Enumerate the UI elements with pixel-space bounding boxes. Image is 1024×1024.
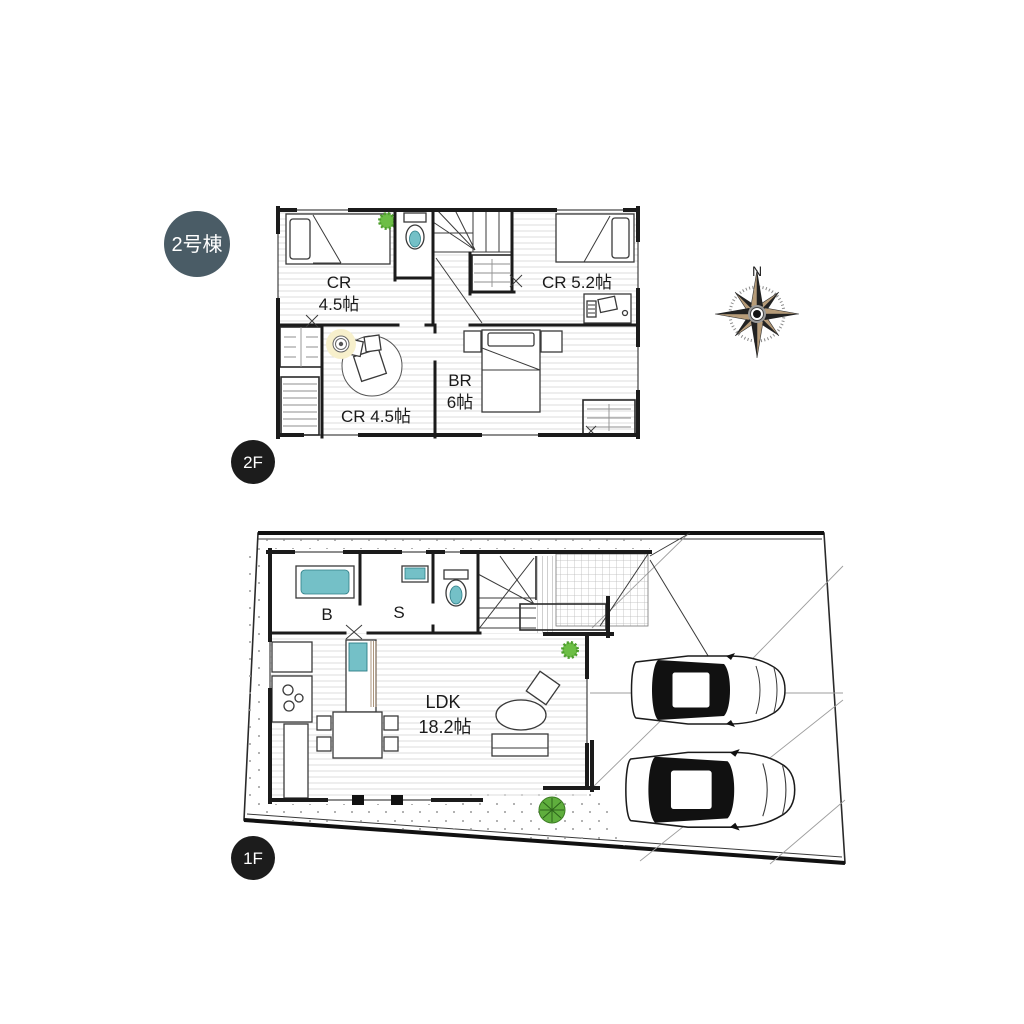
room-label-ldk-1: LDK: [425, 692, 460, 712]
unit-badge: 2号棟: [164, 211, 230, 277]
vent-box-2: [391, 795, 403, 805]
plant-icon-1f: [563, 643, 578, 658]
car-icon-2: [626, 749, 795, 830]
floor-plan-1f: B S LDK 18.2帖: [244, 533, 845, 864]
room-label-cr45-top-1: CR: [327, 273, 352, 292]
bed-icon-cr45: [286, 214, 390, 264]
hall-floor: [536, 556, 556, 633]
floor-label-1f: 1F: [231, 836, 275, 880]
room-label-cr45-bottom: CR 4.5帖: [341, 407, 411, 426]
bathtub-icon: [296, 566, 354, 598]
shrub-icon: [539, 797, 565, 823]
compass-rose: N: [715, 263, 799, 358]
balcony-floor: [278, 369, 322, 437]
room-label-bath: B: [321, 605, 332, 624]
lamp-icon: [326, 329, 356, 359]
desk-icon: [584, 294, 631, 323]
room-label-br-1: BR: [448, 371, 472, 390]
toilet-icon-2f: [404, 213, 426, 249]
sink-icon: [402, 566, 428, 582]
compass-hub-center: [753, 310, 761, 318]
kitchen-island: [346, 640, 376, 712]
rug-oval: [496, 700, 546, 730]
floor-plan-canvas: 2号棟: [0, 0, 1024, 1024]
room-label-sanitary: S: [393, 603, 404, 622]
floor-label-2f: 2F: [231, 440, 275, 484]
vent-box-1: [352, 795, 364, 805]
toilet-icon-1f: [444, 570, 468, 606]
plant-icon-2f: [380, 214, 395, 229]
room-label-ldk-2: 18.2帖: [418, 717, 471, 737]
room-label-br-2: 6帖: [447, 393, 473, 412]
sofa-icon: [492, 734, 548, 756]
bed-icon-cr52: [556, 214, 634, 262]
floor-label-1f-text: 1F: [243, 849, 263, 868]
floor-label-2f-text: 2F: [243, 453, 263, 472]
car-icon-1: [632, 653, 786, 727]
unit-badge-label: 2号棟: [171, 233, 222, 256]
room-label-cr45-top-2: 4.5帖: [319, 295, 360, 314]
floor-plan-page: 2号棟: [0, 0, 1024, 1024]
room-label-cr52: CR 5.2帖: [542, 273, 612, 292]
floor-plan-2f: CR 4.5帖 CR 5.2帖 BR 6帖 CR 4.5帖: [278, 208, 638, 437]
